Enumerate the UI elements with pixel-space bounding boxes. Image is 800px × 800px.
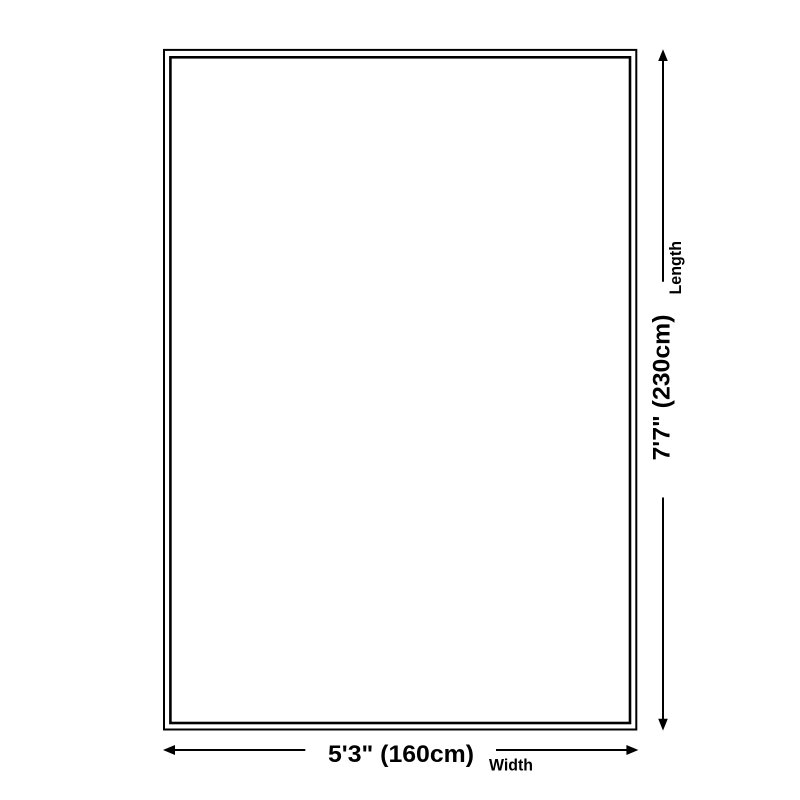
svg-text:Length: Length bbox=[666, 241, 685, 295]
svg-text:5'3" (160cm): 5'3" (160cm) bbox=[328, 741, 474, 768]
svg-text:Width: Width bbox=[489, 756, 533, 775]
svg-text:7'7" (230cm): 7'7" (230cm) bbox=[648, 315, 675, 461]
